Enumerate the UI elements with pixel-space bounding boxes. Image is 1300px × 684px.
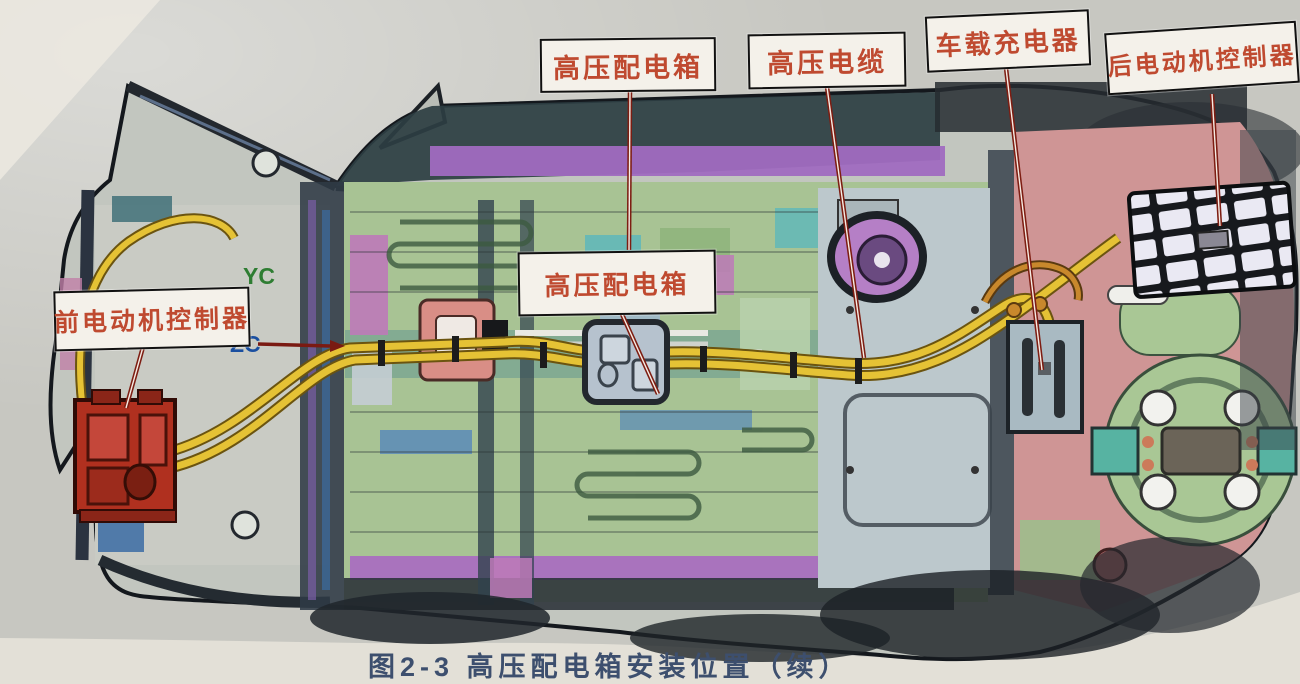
- front-motor-controller: [75, 390, 176, 522]
- figure-photo: YC ZC 高压配电箱 高压电缆 车载充电器 后电动机控制器 前电动机控制器 高…: [0, 0, 1300, 662]
- figure-caption: 图2-3 高压配电箱安装位置（续）: [368, 645, 851, 684]
- rear-motor-controller: [1129, 182, 1296, 297]
- callout-hv-distribution-box-mid: 高压配电箱: [518, 250, 717, 317]
- callout-front-motor-controller: 前电动机控制器: [53, 287, 250, 352]
- callout-rear-motor-controller: 后电动机控制器: [1104, 21, 1300, 96]
- car-body: [51, 82, 1300, 662]
- axis-y-label: YC: [243, 263, 275, 289]
- callout-onboard-charger: 车载充电器: [925, 9, 1091, 72]
- callout-hv-distribution-box-top: 高压配电箱: [540, 37, 717, 93]
- callout-hv-cable: 高压电缆: [748, 32, 907, 90]
